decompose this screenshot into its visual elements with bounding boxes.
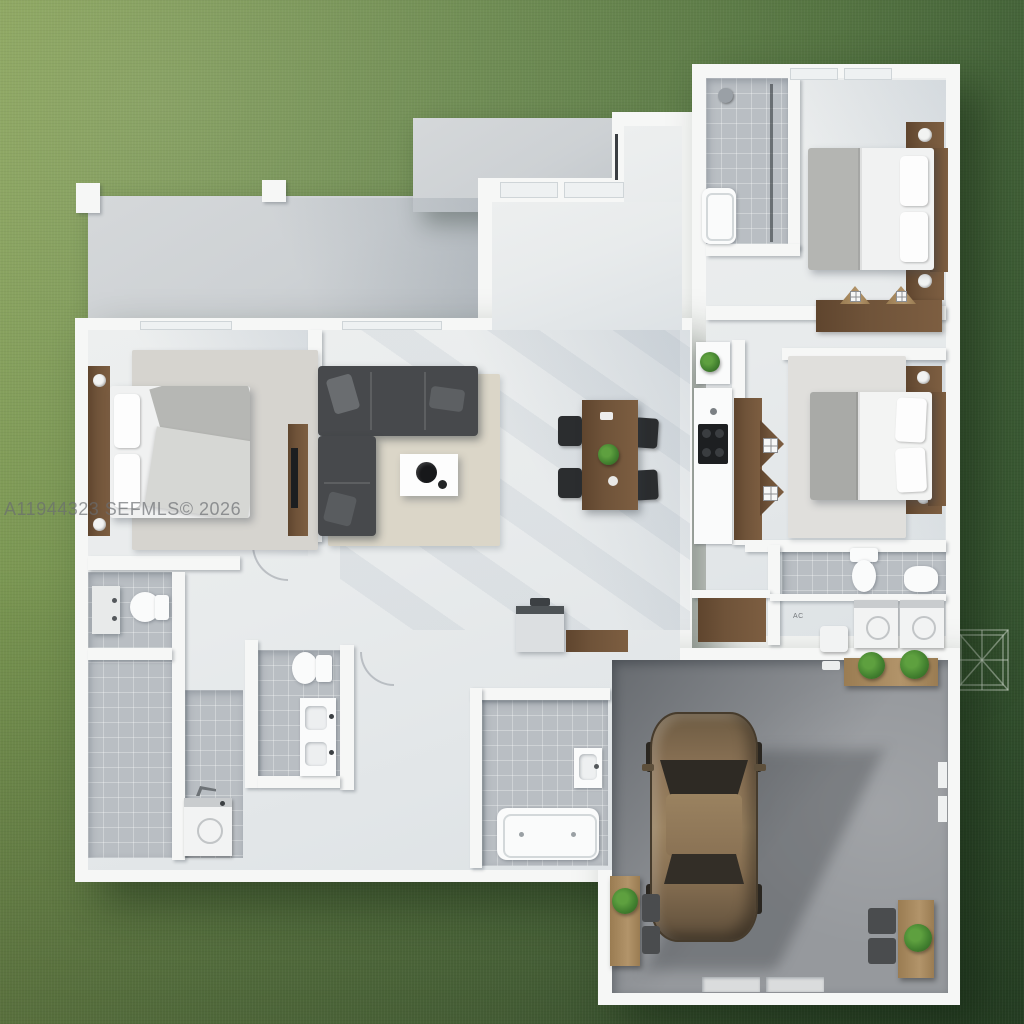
pillow xyxy=(895,397,927,443)
dv-bath-right-wall xyxy=(340,645,354,790)
dresser-knickknack xyxy=(850,291,861,302)
master-bath-vanity xyxy=(92,586,120,634)
bedroom2-window xyxy=(790,68,838,80)
garage-door-panel xyxy=(702,977,760,992)
double-vanity xyxy=(300,698,336,776)
cabinet-top xyxy=(516,606,564,614)
table-setting xyxy=(608,476,618,486)
patio-slab xyxy=(88,196,480,336)
hall-cabinet xyxy=(516,606,564,652)
appliance-dial xyxy=(220,801,225,806)
potted-plant xyxy=(700,352,720,372)
cushion-seam xyxy=(424,372,426,430)
toilet-bowl xyxy=(292,652,318,684)
appliance-door xyxy=(197,818,223,844)
ensuite-right-wall xyxy=(788,78,800,250)
water-heater xyxy=(820,626,848,652)
dresser-knickknack xyxy=(896,291,907,302)
tub-rim xyxy=(706,193,734,241)
tub-faucet xyxy=(571,832,576,837)
garage-door-panel xyxy=(766,977,824,992)
master-bottom-wall xyxy=(88,556,240,570)
car-windshield xyxy=(660,760,748,796)
decor-bowl xyxy=(416,462,437,483)
table-setting xyxy=(600,412,613,420)
entry-bench xyxy=(566,630,628,652)
tv xyxy=(291,448,298,508)
folding-chair xyxy=(642,894,660,922)
patio-pillar xyxy=(76,183,100,213)
folding-chair xyxy=(868,938,896,964)
throw-pillow xyxy=(326,373,361,415)
tub-bath-left-wall xyxy=(470,688,482,868)
dining-table xyxy=(582,400,638,510)
burner xyxy=(715,448,724,457)
front-window xyxy=(564,182,624,198)
pillow xyxy=(900,156,928,206)
vanity-sink xyxy=(305,706,327,730)
floor-plan-scene: AC xyxy=(0,0,1024,1024)
pillow xyxy=(114,394,140,448)
centerpiece-plant xyxy=(598,444,619,465)
living-window xyxy=(342,321,442,330)
tub-drain xyxy=(519,832,524,837)
potted-plant xyxy=(904,924,932,952)
ac-closet-label: AC xyxy=(793,613,804,620)
shower-glass xyxy=(770,84,773,242)
appliance-door xyxy=(912,616,936,640)
sectional-sofa-side xyxy=(318,436,376,536)
table-lamp xyxy=(918,128,932,142)
faucet xyxy=(329,714,334,719)
car-mirror xyxy=(754,764,766,771)
cooktop xyxy=(698,424,728,464)
closet-shelf-box xyxy=(763,438,778,453)
bathroom-sink xyxy=(904,566,938,592)
sectional-sofa-top xyxy=(318,366,478,436)
dining-chair xyxy=(558,416,582,446)
table-lamp xyxy=(917,371,930,384)
table-lamp xyxy=(918,274,932,288)
decor-dish xyxy=(438,480,447,489)
master-bath-wall xyxy=(88,648,172,660)
toilet-tank xyxy=(155,595,169,620)
vanity-sink xyxy=(305,742,327,766)
dining-chair xyxy=(558,468,582,498)
dv-bath-bottom-wall xyxy=(258,776,340,788)
garage-side-door xyxy=(938,796,947,822)
mls-watermark: A11944323 SEFMLS© 2026 xyxy=(4,499,241,520)
potted-plant xyxy=(612,888,638,914)
potted-plant xyxy=(858,652,885,679)
car-roof xyxy=(666,794,742,856)
cushion-seam xyxy=(324,482,370,484)
laundry-washer xyxy=(184,798,232,856)
cushion-seam xyxy=(370,372,372,430)
faucet xyxy=(112,598,117,603)
car-mirror xyxy=(642,764,654,771)
burner xyxy=(715,429,724,438)
bed-fold xyxy=(858,148,862,270)
bedroom2-window xyxy=(844,68,892,80)
appliance-panel xyxy=(854,600,898,608)
faucet xyxy=(112,616,117,621)
coffee-table xyxy=(400,454,458,496)
washer xyxy=(854,600,898,648)
table-lamp xyxy=(93,374,106,387)
throw-pillow xyxy=(429,386,466,413)
workbench-item xyxy=(822,661,840,670)
patio-pillar xyxy=(262,180,286,202)
faucet xyxy=(594,764,599,769)
dryer xyxy=(900,600,944,648)
pillow xyxy=(895,447,927,493)
toilet-bowl xyxy=(852,560,876,592)
bedroom2-bed xyxy=(808,148,934,270)
closet-rod xyxy=(734,398,762,540)
shower-head xyxy=(718,88,733,103)
bedroom3-bed xyxy=(810,392,932,500)
kitchen-faucet xyxy=(710,408,717,415)
trellis xyxy=(954,628,1010,692)
tub-rim xyxy=(503,814,597,858)
mudroom-bench xyxy=(698,598,766,642)
wall-sink xyxy=(574,748,602,788)
master-window xyxy=(140,321,232,330)
car xyxy=(650,712,758,942)
folding-chair xyxy=(868,908,896,934)
bathtub-small xyxy=(702,188,736,244)
cabinet-item xyxy=(530,598,550,606)
burner xyxy=(702,448,711,457)
appliance-door xyxy=(866,616,890,640)
bathtub xyxy=(497,808,599,860)
folding-chair xyxy=(642,926,660,954)
entry-floor xyxy=(492,202,682,330)
appliance-panel xyxy=(900,600,944,608)
front-window xyxy=(500,182,558,198)
garage-side-door xyxy=(938,762,947,788)
bed-blanket xyxy=(810,392,858,500)
dv-bath-left-wall xyxy=(245,640,258,788)
bed-fold xyxy=(856,392,860,500)
faucet xyxy=(329,750,334,755)
burner xyxy=(702,429,711,438)
throw-pillow xyxy=(323,491,357,527)
car-rear-window xyxy=(664,854,744,884)
ensuite-bottom-wall xyxy=(706,244,800,256)
tub-bath-top-wall xyxy=(470,688,610,700)
bed-blanket xyxy=(808,148,860,270)
potted-plant xyxy=(900,650,929,679)
bedroom2-dresser xyxy=(816,300,942,332)
front-door xyxy=(615,134,618,180)
toilet-tank xyxy=(316,655,332,682)
mudnook-wall xyxy=(692,590,770,598)
closet-shelf-box xyxy=(763,486,778,501)
pillow xyxy=(900,212,928,262)
